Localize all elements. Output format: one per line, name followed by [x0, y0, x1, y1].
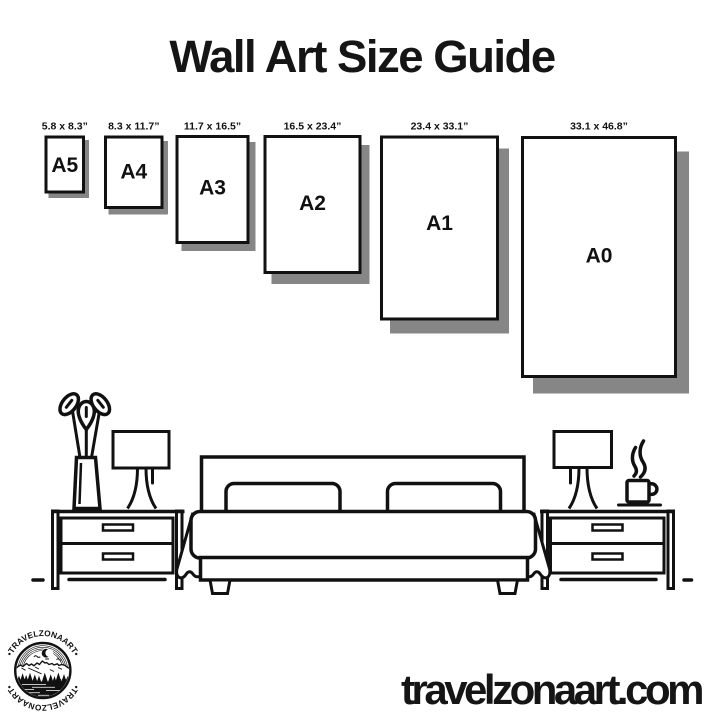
svg-text:33.1 x 46.8”: 33.1 x 46.8”	[570, 121, 628, 133]
svg-text:A4: A4	[120, 161, 147, 184]
svg-text:11.7 x 16.5”: 11.7 x 16.5”	[184, 121, 241, 133]
svg-text:A3: A3	[199, 177, 226, 200]
svg-text:travelzonaart.com: travelzonaart.com	[401, 666, 702, 713]
svg-text:A0: A0	[586, 245, 613, 268]
svg-text:16.5 x 23.4”: 16.5 x 23.4”	[284, 121, 342, 133]
svg-text:8.3 x 11.7”: 8.3 x 11.7”	[108, 121, 159, 133]
svg-text:A1: A1	[426, 212, 453, 235]
svg-text:A2: A2	[299, 192, 326, 215]
svg-text:A5: A5	[51, 154, 78, 177]
svg-text:5.8 x 8.3”: 5.8 x 8.3”	[42, 121, 88, 133]
svg-text:23.4 x 33.1”: 23.4 x 33.1”	[411, 121, 469, 133]
svg-text:Wall Art Size Guide: Wall Art Size Guide	[169, 31, 554, 82]
